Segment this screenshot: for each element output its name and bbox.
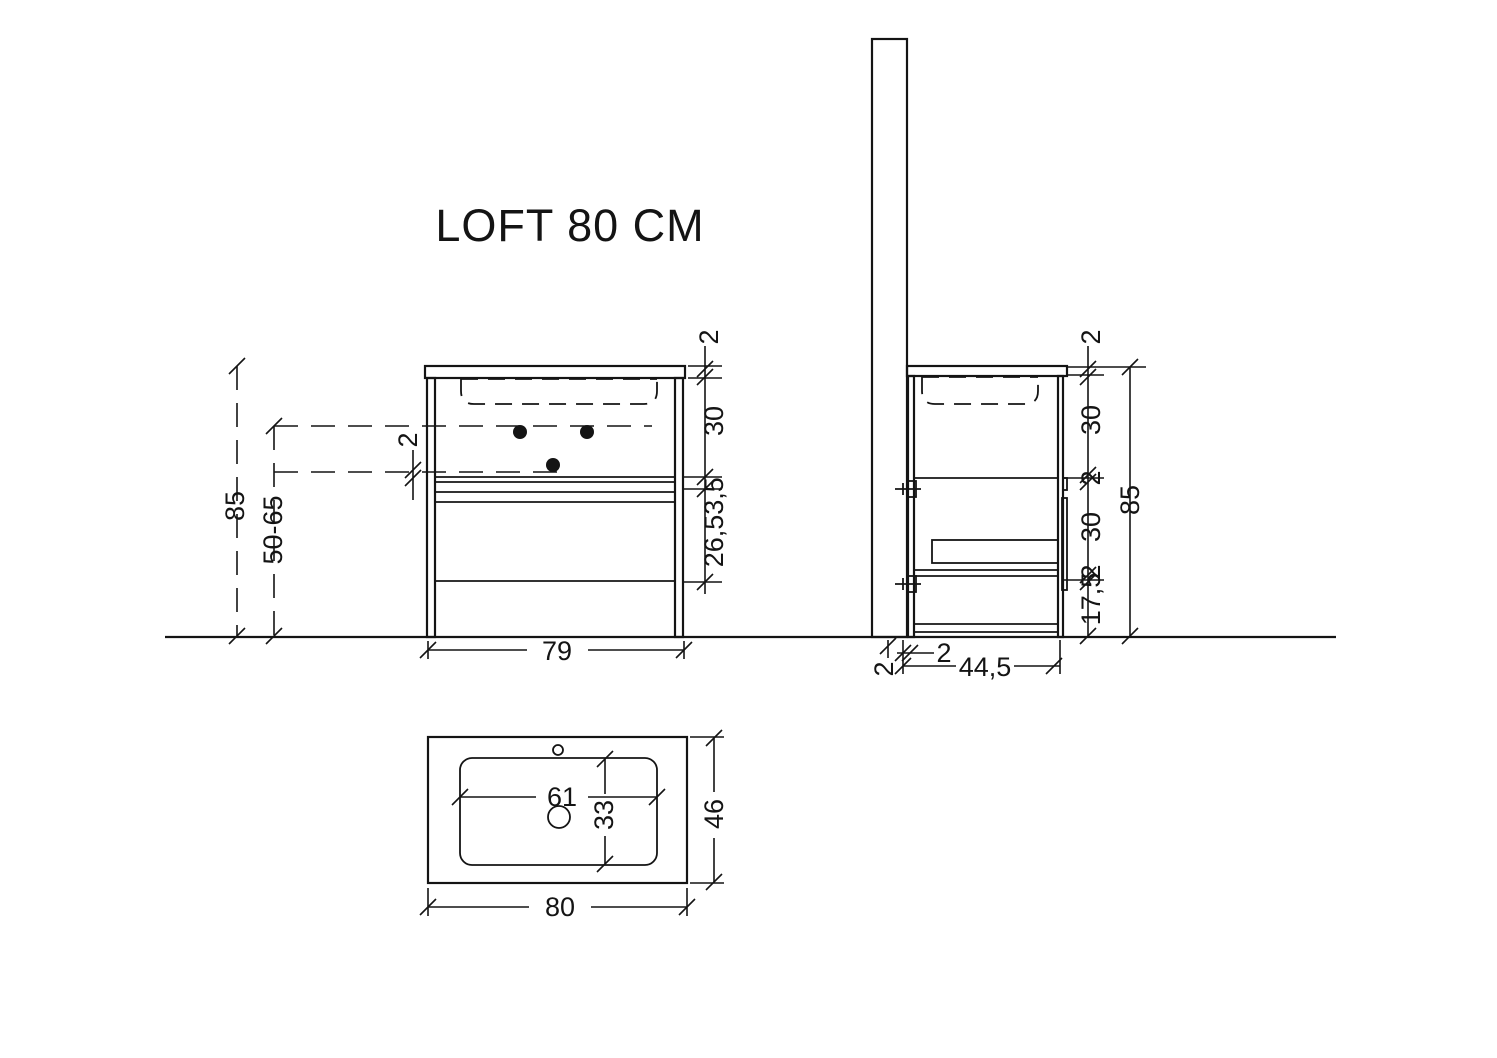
dim-side-wall-offset: 2 [869, 661, 899, 676]
dim-top-basin-depth: 33 [589, 800, 619, 830]
faucet-hole-left [513, 425, 527, 439]
top-faucet-hole [553, 745, 563, 755]
faucet-hole-center [546, 458, 560, 472]
dim-front-overall-height: 85 [220, 491, 250, 521]
dim-side-back-gap: 2 [936, 638, 951, 668]
front-view [274, 366, 685, 637]
front-basin-hidden-outline [461, 379, 657, 404]
dim-front-installation-range: 50-65 [258, 495, 288, 564]
dim-side-top-thickness: 2 [1076, 329, 1106, 344]
front-faucet-holes [513, 425, 594, 472]
dim-top-counter-depth: 46 [699, 799, 729, 829]
loft-80-technical-drawing: LOFT 80 CM 85 50-65 [0, 0, 1497, 1058]
side-view [872, 39, 1067, 637]
dim-front-drawer-height: 26,5 [699, 515, 729, 568]
dim-side-plinth-height: 17,5 [1076, 573, 1106, 626]
dim-side-overall-height: 85 [1115, 485, 1145, 515]
side-basin-hidden-outline [922, 377, 1038, 404]
front-countertop [425, 366, 685, 378]
dim-side-basin-section: 30 [1076, 405, 1106, 435]
drawing-title: LOFT 80 CM [435, 200, 704, 251]
dim-front-cabinet-width: 79 [542, 636, 572, 666]
drawing-page: LOFT 80 CM 85 50-65 [0, 0, 1497, 1058]
side-drawer-box [932, 540, 1058, 563]
side-drawer-front-edge [1062, 498, 1067, 590]
front-shelf-lines [435, 477, 675, 502]
front-right-side-panel [675, 378, 683, 637]
dim-front-shelf-thickness: 3,5 [699, 477, 729, 515]
dim-side-divider-thickness: 2 [1076, 470, 1106, 485]
dim-side-cabinet-depth: 44,5 [959, 652, 1012, 682]
front-left-side-panel [427, 378, 435, 637]
dim-top-counter-width: 80 [545, 892, 575, 922]
wall-panel [872, 39, 907, 637]
side-countertop [907, 366, 1067, 376]
faucet-hole-right [580, 425, 594, 439]
dim-side-drawer-section: 30 [1076, 512, 1106, 542]
dim-front-top-thickness: 2 [694, 329, 724, 344]
side-back-panel [908, 376, 914, 637]
dim-front-hole-offset: 2 [393, 432, 423, 447]
dim-front-basin-section: 30 [699, 406, 729, 436]
side-front-tab [1063, 478, 1067, 490]
front-dimensions: 85 50-65 2 79 2 30 3,5 26,5 [220, 329, 729, 666]
side-dimensions: 2 30 2 30 2 17,5 85 2 2 44,5 [869, 329, 1146, 682]
dim-top-basin-width: 61 [547, 782, 577, 812]
